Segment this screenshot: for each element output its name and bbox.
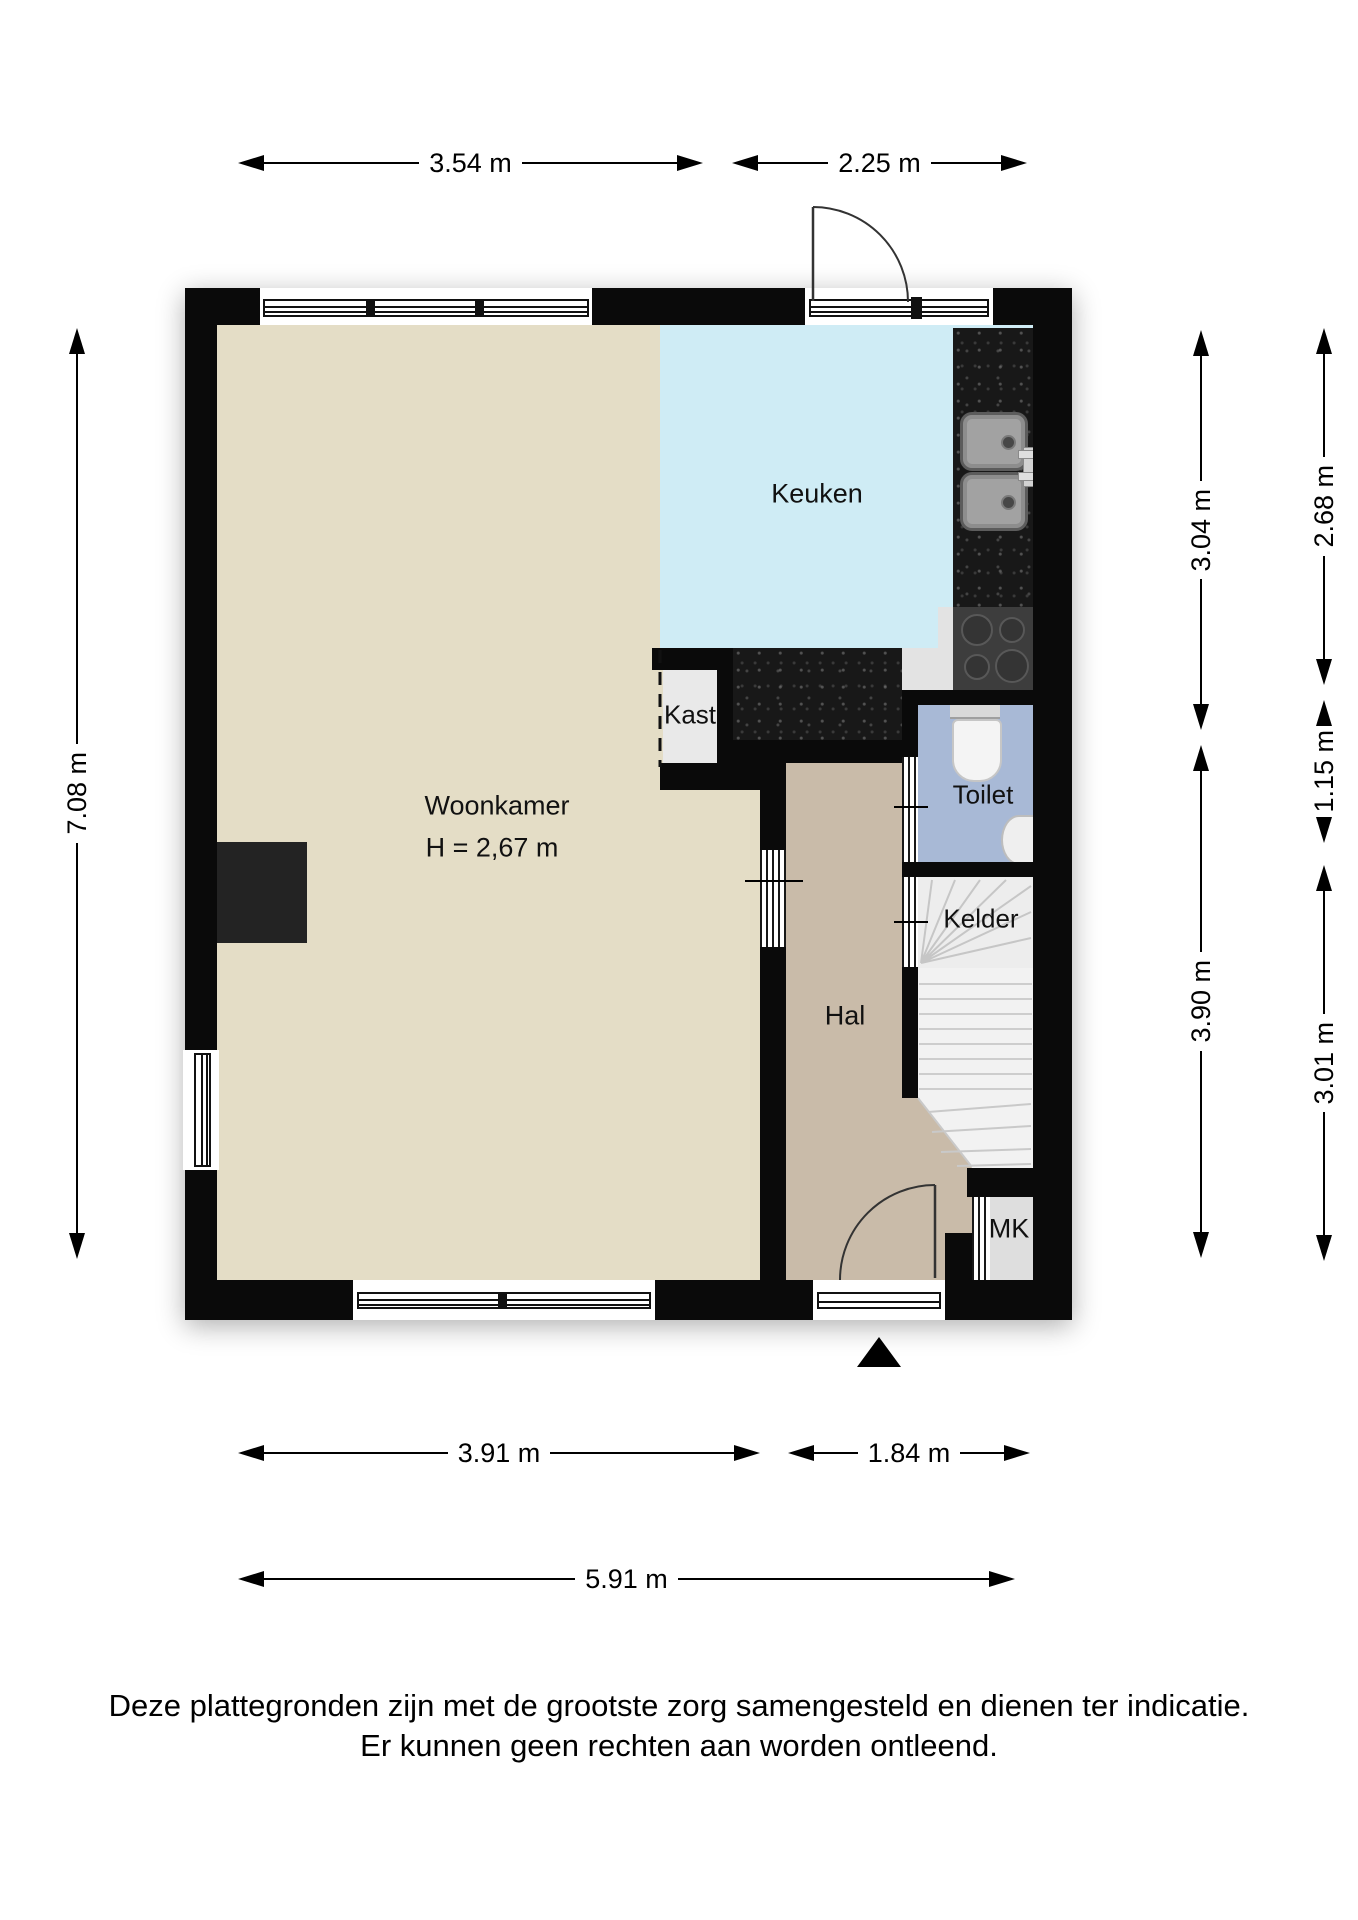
kelder-door (902, 877, 918, 967)
kelder-label: Kelder (943, 904, 1018, 935)
door-top-frame (805, 288, 993, 325)
woonkamer-label: Woonkamer (424, 791, 569, 822)
kast-wall-top (652, 648, 733, 670)
dim-right-inner-top-label: 3.04 m (1188, 481, 1215, 580)
dim-right-outer-middle: 1.15 m (1309, 700, 1339, 851)
dim-right-outer-top-label: 2.68 m (1311, 457, 1338, 556)
dim-bottom-total-label: 5.91 m (575, 1566, 678, 1593)
toilet-door (902, 757, 918, 862)
toilet-wall-bottom (902, 862, 1033, 877)
toilet-label: Toilet (953, 780, 1014, 811)
dim-top-left-label: 3.54 m (419, 150, 522, 177)
dim-bottom-right: 1.84 m (788, 1438, 1030, 1468)
mk-wall-pier (945, 1233, 972, 1280)
dim-top-right: 2.25 m (732, 148, 1027, 178)
divider-wall-lower (760, 947, 786, 1280)
dim-right-inner-top: 3.04 m (1186, 330, 1216, 730)
toilet-tank-icon (950, 703, 1000, 719)
wall-bottom-mid (655, 1280, 813, 1320)
dim-top-left: 3.54 m (238, 148, 703, 178)
wall-right (1033, 288, 1072, 1320)
chimney-block (217, 842, 307, 943)
dim-right-outer-bottom: 3.01 m (1309, 865, 1339, 1261)
dim-bottom-right-label: 1.84 m (858, 1440, 961, 1467)
toilet-wall-left (902, 705, 918, 757)
dim-right-outer-middle-label: 1.15 m (1311, 726, 1338, 817)
dim-bottom-left-label: 3.91 m (448, 1440, 551, 1467)
kitchen-sink-icon (960, 412, 1028, 530)
keuken-toilet-wall (902, 690, 1033, 705)
entrance-arrow-icon (857, 1337, 901, 1367)
wall-bottom-left (185, 1280, 353, 1320)
toilet-sink-icon (1001, 815, 1037, 865)
disclaimer: Deze plattegronden zijn met de grootste … (0, 1686, 1358, 1766)
hal-wall-top (717, 740, 907, 763)
stairs-floor (918, 968, 1033, 1098)
keuken-label: Keuken (771, 479, 863, 510)
woonkamer-height-label: H = 2,67 m (426, 833, 559, 864)
kitchen-cabinet (902, 648, 953, 690)
dim-top-right-label: 2.25 m (828, 150, 931, 177)
dim-right-inner-bottom: 3.90 m (1186, 745, 1216, 1258)
disclaimer-line2: Er kunnen geen rechten aan worden ontlee… (0, 1726, 1358, 1766)
front-door-frame (813, 1280, 945, 1320)
dim-right-outer-top: 2.68 m (1309, 328, 1339, 685)
wall-bottom-right (945, 1280, 1072, 1320)
dim-left-label: 7.08 m (64, 744, 91, 843)
kitchen-counter-bottom (733, 648, 907, 740)
window-bottom (353, 1280, 655, 1320)
mk-label: MK (989, 1214, 1030, 1245)
dim-right-outer-bottom-label: 3.01 m (1311, 1014, 1338, 1113)
window-top (260, 288, 592, 325)
kast-wall-bottom (660, 763, 786, 790)
dim-bottom-left: 3.91 m (238, 1438, 760, 1468)
floorplan-page: Woonkamer H = 2,67 m Keuken Kast Toilet … (0, 0, 1358, 1920)
dim-left: 7.08 m (62, 328, 92, 1259)
mk-door (972, 1197, 990, 1280)
wall-top-mid (592, 288, 805, 325)
mk-wall-top (967, 1168, 1033, 1197)
hal-opening (760, 850, 786, 947)
stairs-wall-left (902, 967, 918, 1098)
disclaimer-line1: Deze plattegronden zijn met de grootste … (0, 1686, 1358, 1726)
window-left (183, 1050, 219, 1170)
dim-right-inner-bottom-label: 3.90 m (1188, 952, 1215, 1051)
wall-left-upper (185, 288, 217, 1050)
divider-wall-upper (760, 790, 786, 850)
hal-label: Hal (825, 1001, 866, 1032)
kitchen-cabinet-side (938, 607, 953, 648)
toilet-bowl-icon (952, 719, 1002, 782)
dim-bottom-total: 5.91 m (238, 1564, 1015, 1594)
kast-label: Kast (664, 700, 716, 731)
stove-icon (953, 607, 1033, 690)
